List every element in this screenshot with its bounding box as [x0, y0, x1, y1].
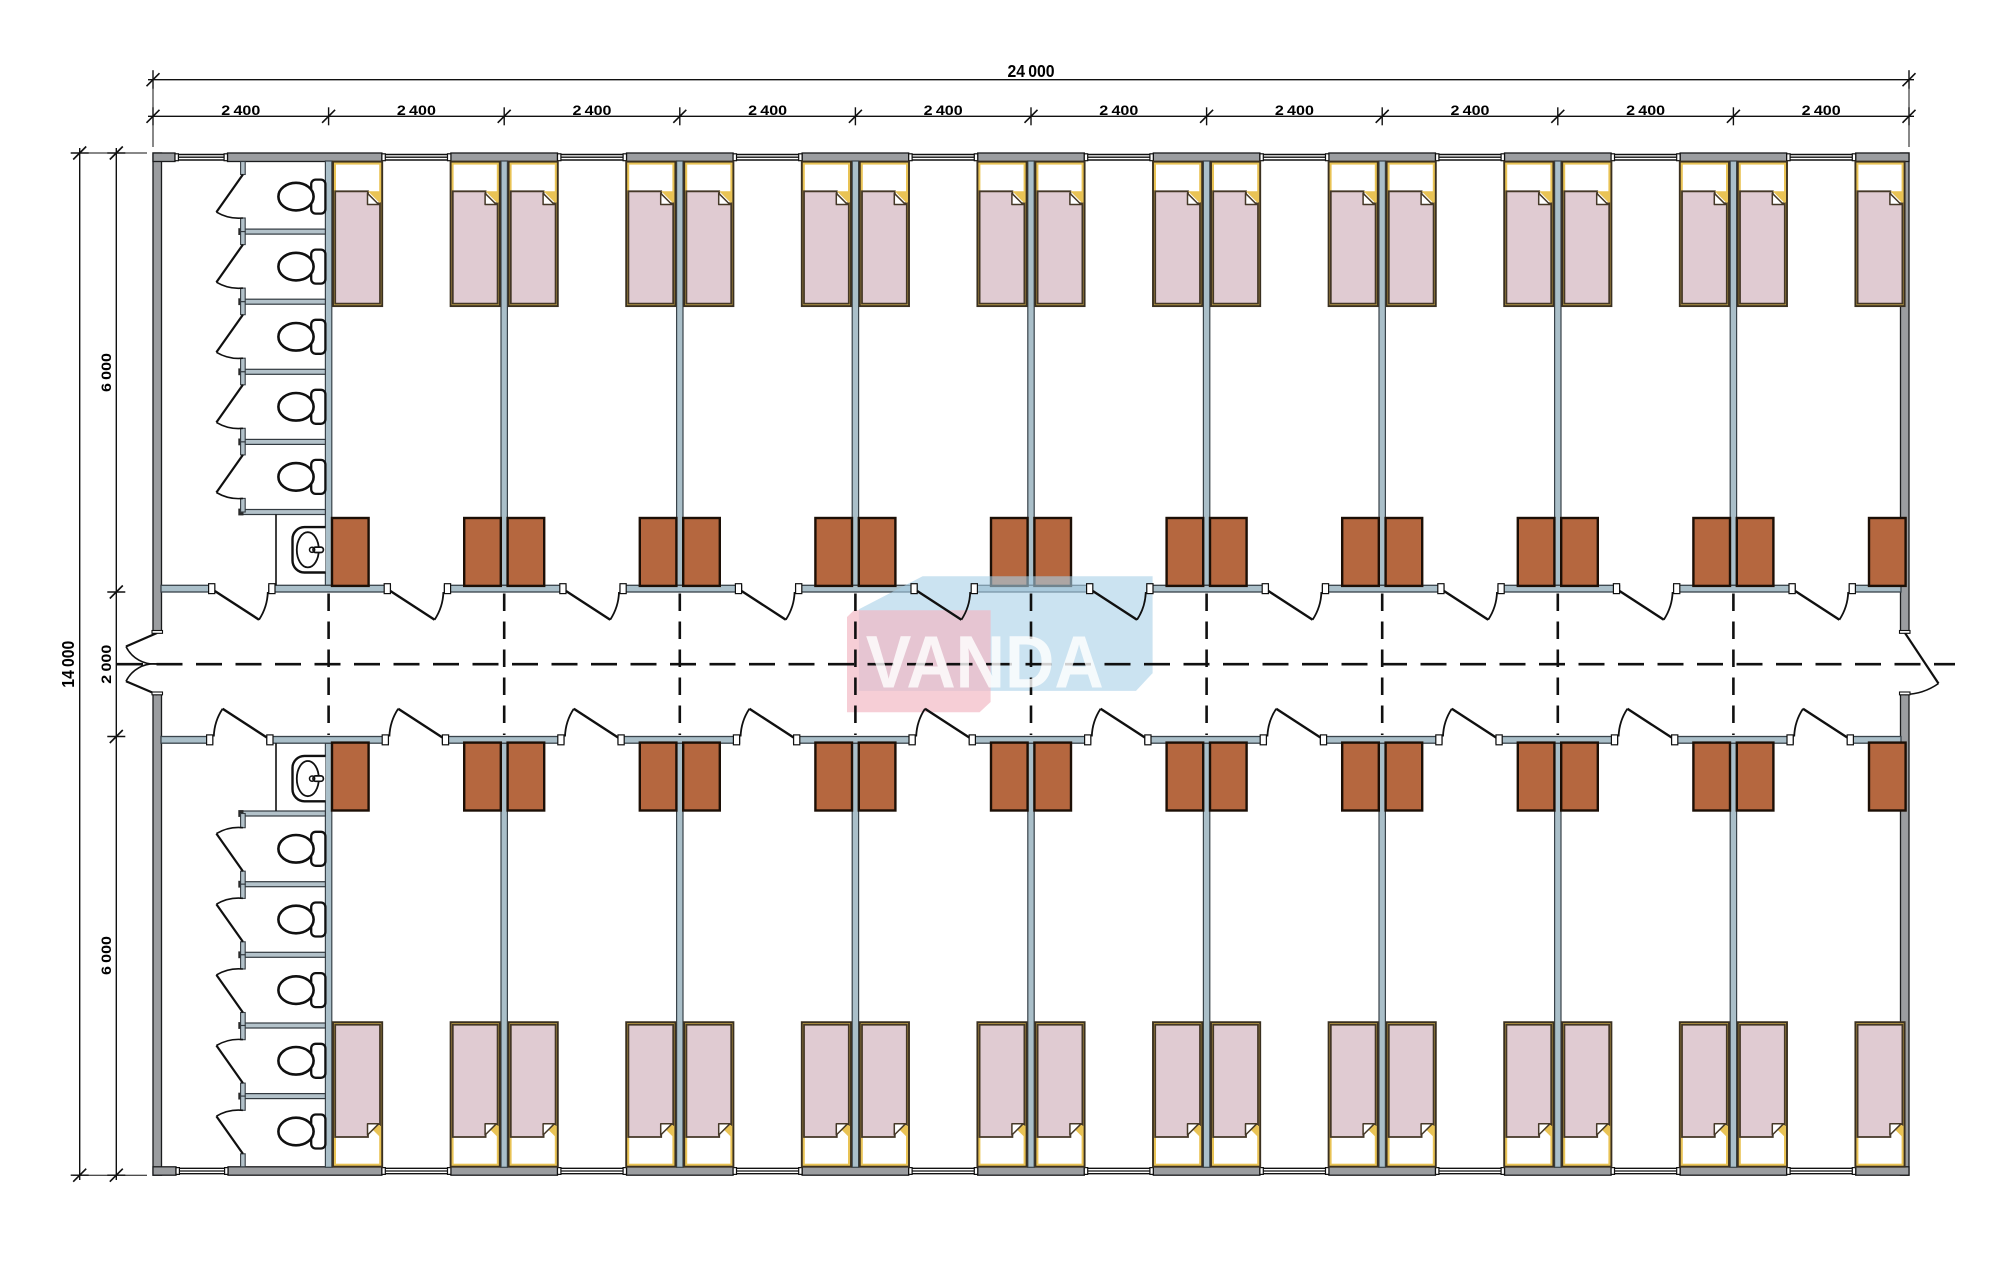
svg-text:6 000: 6 000	[98, 936, 114, 975]
svg-text:2 000: 2 000	[98, 644, 114, 683]
svg-text:2 400: 2 400	[397, 102, 436, 118]
svg-text:2 400: 2 400	[748, 102, 787, 118]
svg-text:24 000: 24 000	[1008, 61, 1055, 81]
svg-text:2 400: 2 400	[1802, 102, 1841, 118]
svg-text:2 400: 2 400	[1099, 102, 1138, 118]
svg-text:2 400: 2 400	[1451, 102, 1490, 118]
svg-text:2 400: 2 400	[1626, 102, 1665, 118]
svg-text:VANDA: VANDA	[866, 621, 1104, 704]
svg-text:2 400: 2 400	[1275, 102, 1314, 118]
svg-text:14 000: 14 000	[58, 640, 78, 687]
svg-text:2 400: 2 400	[924, 102, 963, 118]
svg-text:2 400: 2 400	[573, 102, 612, 118]
svg-text:2 400: 2 400	[221, 102, 260, 118]
svg-text:6 000: 6 000	[98, 353, 114, 392]
